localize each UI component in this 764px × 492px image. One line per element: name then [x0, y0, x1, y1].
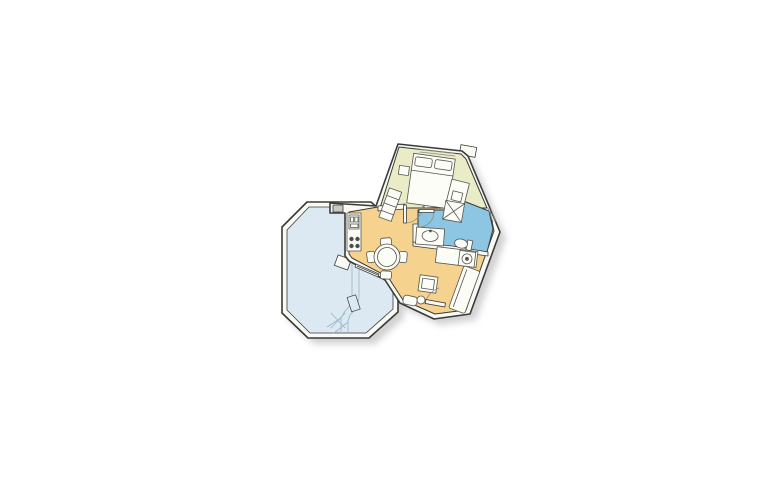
dining-chair-south: [380, 271, 391, 280]
floor-plan-canvas: [0, 0, 764, 492]
washbasin-unit: [415, 227, 444, 246]
stove-burner-4: [356, 244, 360, 248]
bedroom-door-leaf: [404, 205, 407, 223]
floor-plan-svg: [0, 0, 764, 492]
stove-burner-1: [350, 237, 354, 241]
dresser-drawer: [451, 191, 463, 202]
nightstand: [398, 165, 409, 175]
shower: [443, 200, 465, 222]
coffee-table-top: [418, 275, 438, 293]
washing-machine-dot: [465, 257, 468, 260]
stove-burner-2: [356, 237, 360, 241]
basin-tap: [429, 230, 431, 232]
kitchen-counter: [347, 213, 361, 251]
stove-burner-3: [350, 244, 354, 248]
coffee-table: [418, 275, 438, 293]
pillow-right: [434, 159, 452, 170]
entrance-planter: [417, 296, 425, 304]
plan: [282, 144, 500, 338]
pillow-left: [414, 157, 432, 168]
wall-column: [333, 205, 343, 212]
bathroom-door-leaf: [419, 210, 434, 213]
